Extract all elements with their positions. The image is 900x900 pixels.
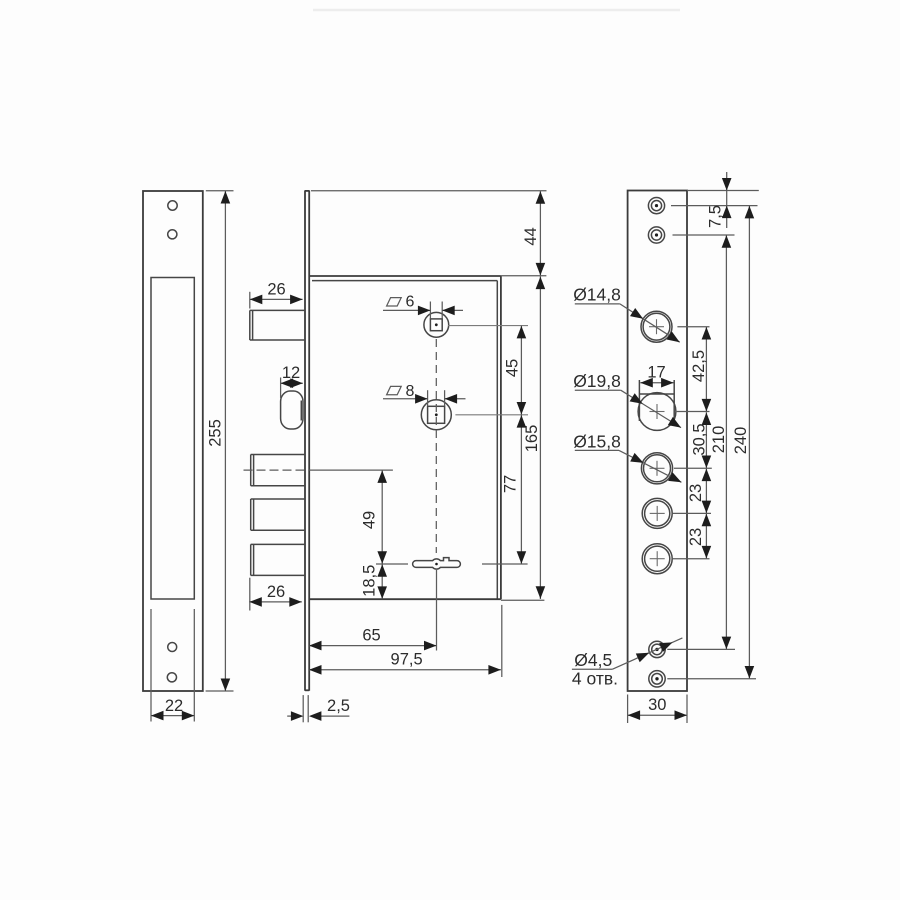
svg-text:97,5: 97,5: [391, 651, 423, 669]
svg-text:30,5: 30,5: [691, 423, 709, 455]
svg-text:Ø15,8: Ø15,8: [573, 431, 621, 451]
svg-text:6: 6: [406, 294, 415, 311]
svg-text:255: 255: [207, 419, 225, 447]
svg-text:Ø14,8: Ø14,8: [573, 285, 621, 305]
svg-text:49: 49: [360, 511, 378, 529]
svg-text:Ø19,8: Ø19,8: [573, 371, 621, 391]
svg-text:2,5: 2,5: [327, 697, 350, 715]
svg-text:8: 8: [406, 383, 415, 400]
svg-text:12: 12: [282, 364, 300, 382]
svg-text:77: 77: [501, 475, 519, 493]
svg-text:30: 30: [648, 696, 666, 714]
svg-text:23: 23: [687, 484, 705, 502]
svg-text:165: 165: [523, 425, 541, 453]
svg-text:4 отв.: 4 отв.: [572, 669, 618, 689]
svg-text:17: 17: [647, 363, 665, 381]
svg-text:7,5: 7,5: [707, 205, 725, 228]
svg-text:42,5: 42,5: [690, 350, 708, 382]
svg-text:26: 26: [267, 281, 285, 299]
svg-text:65: 65: [362, 626, 380, 644]
svg-text:45: 45: [503, 359, 521, 377]
svg-text:Ø4,5: Ø4,5: [574, 650, 612, 670]
svg-text:18,5: 18,5: [361, 565, 379, 597]
svg-text:210: 210: [710, 426, 728, 454]
svg-text:23: 23: [687, 528, 705, 546]
svg-text:22: 22: [165, 697, 183, 715]
svg-text:44: 44: [522, 227, 540, 245]
svg-text:240: 240: [732, 427, 750, 455]
svg-text:26: 26: [267, 583, 285, 601]
